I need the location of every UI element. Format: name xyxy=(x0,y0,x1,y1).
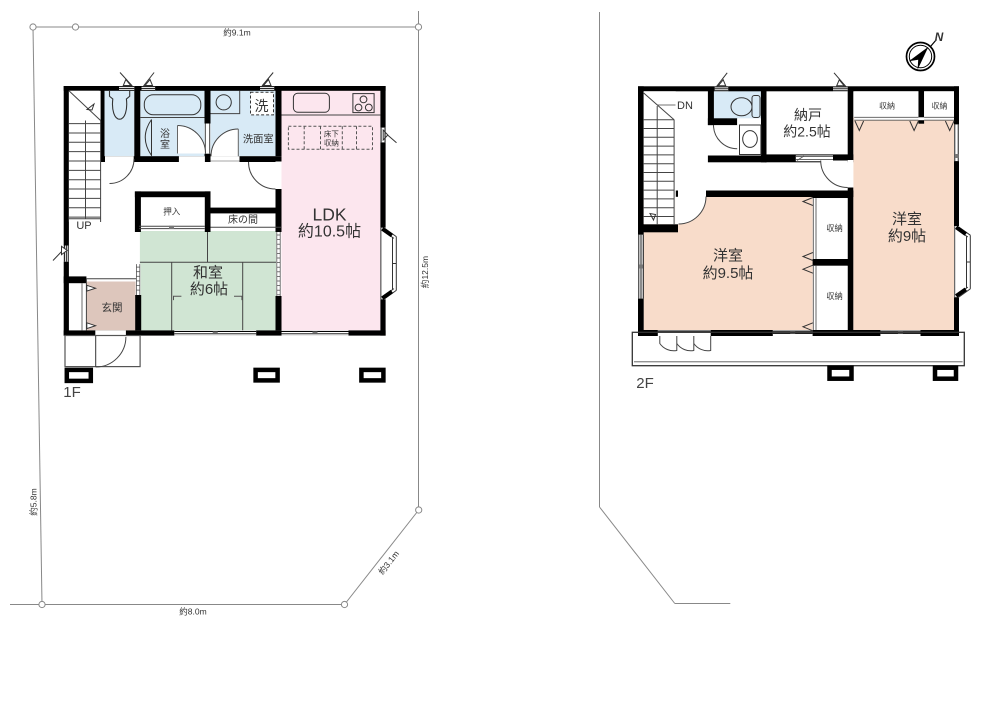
svg-text:2F: 2F xyxy=(636,375,654,392)
svg-text:室: 室 xyxy=(160,138,170,151)
svg-text:1F: 1F xyxy=(63,384,81,401)
svg-text:約9.1m: 約9.1m xyxy=(223,28,250,38)
svg-text:押入: 押入 xyxy=(163,207,181,217)
svg-text:約2.5帖: 約2.5帖 xyxy=(783,124,830,140)
svg-text:洋室: 洋室 xyxy=(713,248,743,265)
svg-text:約8.0m: 約8.0m xyxy=(179,607,206,617)
svg-text:浴: 浴 xyxy=(160,128,170,140)
svg-text:約6帖: 約6帖 xyxy=(190,281,228,298)
svg-text:床の間: 床の間 xyxy=(228,213,258,226)
svg-text:収納: 収納 xyxy=(879,101,895,111)
svg-text:収納: 収納 xyxy=(932,101,948,111)
svg-text:収納: 収納 xyxy=(324,138,339,148)
svg-text:玄関: 玄関 xyxy=(102,301,123,314)
svg-text:約10.5帖: 約10.5帖 xyxy=(298,223,361,241)
svg-text:床下: 床下 xyxy=(324,129,339,139)
svg-text:洋室: 洋室 xyxy=(892,211,922,228)
svg-text:約5.8m: 約5.8m xyxy=(29,488,39,515)
svg-text:約12.5m: 約12.5m xyxy=(420,256,430,288)
svg-text:和室: 和室 xyxy=(193,265,223,282)
svg-text:N: N xyxy=(935,30,944,44)
svg-text:LDK: LDK xyxy=(312,205,346,225)
svg-text:DN: DN xyxy=(677,100,693,112)
svg-text:UP: UP xyxy=(76,220,91,232)
svg-text:約3.1m: 約3.1m xyxy=(376,549,401,577)
svg-text:約9帖: 約9帖 xyxy=(888,228,926,245)
svg-text:納戸: 納戸 xyxy=(794,107,822,123)
svg-text:収納: 収納 xyxy=(826,223,843,233)
svg-text:洗: 洗 xyxy=(255,98,269,114)
svg-text:洗面室: 洗面室 xyxy=(243,133,274,146)
svg-text:約9.5帖: 約9.5帖 xyxy=(703,265,754,282)
svg-text:収納: 収納 xyxy=(826,291,843,301)
